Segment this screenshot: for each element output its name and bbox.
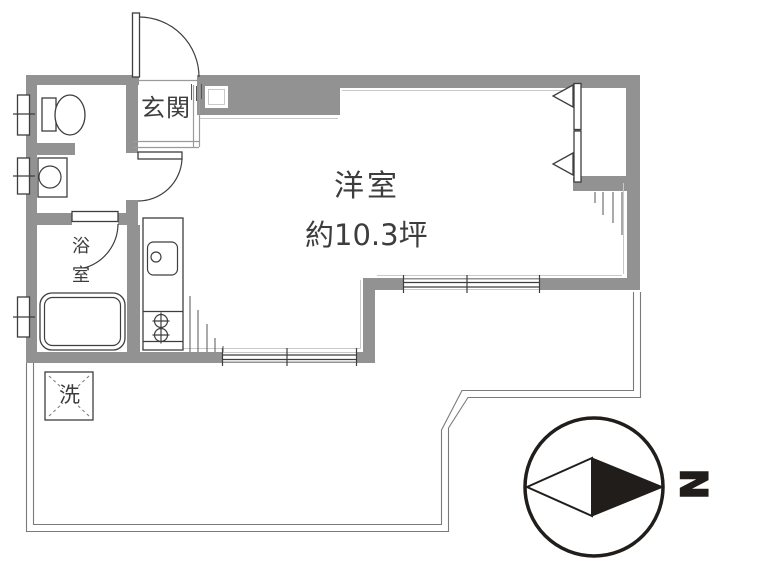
toilet-door-swing-arc: [138, 159, 182, 201]
toilet-door-panel: [138, 152, 182, 159]
closet-door-track: [574, 131, 581, 182]
laundry-label: 洗: [59, 385, 80, 406]
wall: [126, 85, 138, 153]
window: [403, 280, 540, 290]
front-door-panel: [133, 13, 140, 77]
wall: [37, 213, 72, 225]
bathroom-label: 浴室: [70, 236, 88, 294]
toilet-door-opening: [126, 153, 138, 200]
closet-interior: [581, 88, 626, 176]
floor-plan: N 玄関 洋室 約10.3坪 浴室 洗: [0, 0, 770, 569]
toilet-tank-icon: [42, 98, 56, 131]
closet: [553, 82, 632, 235]
closet-door-track: [574, 84, 581, 130]
wall: [118, 213, 138, 225]
main-room-label: 洋室: [334, 172, 400, 202]
bathtub-icon: [40, 293, 125, 350]
wall: [26, 75, 139, 85]
kitchen: [143, 218, 223, 352]
main-room-area-label: 約10.3坪: [305, 221, 428, 250]
kitchen-hatch-marks: [190, 296, 223, 352]
toilet-bowl-icon: [55, 95, 85, 135]
meter-box: [205, 86, 228, 108]
wall: [37, 143, 75, 155]
compass-icon: N: [525, 418, 715, 556]
washbasin-counter-icon: [38, 158, 67, 197]
folding-door-icon: [553, 153, 573, 175]
floor-plan-drawing: N: [0, 0, 770, 569]
front-door-swing-arc: [139, 17, 199, 77]
wall: [363, 278, 375, 363]
entrance: [133, 13, 202, 148]
entrance-label: 玄関: [141, 96, 191, 120]
closet-hatch-marks: [595, 192, 622, 235]
window: [18, 95, 30, 135]
window: [222, 353, 357, 362]
folding-door-icon: [553, 85, 573, 107]
kitchen-counter: [143, 218, 183, 350]
bathroom-door-panel: [72, 212, 118, 222]
wall: [127, 225, 140, 352]
north-label: N: [672, 469, 715, 500]
